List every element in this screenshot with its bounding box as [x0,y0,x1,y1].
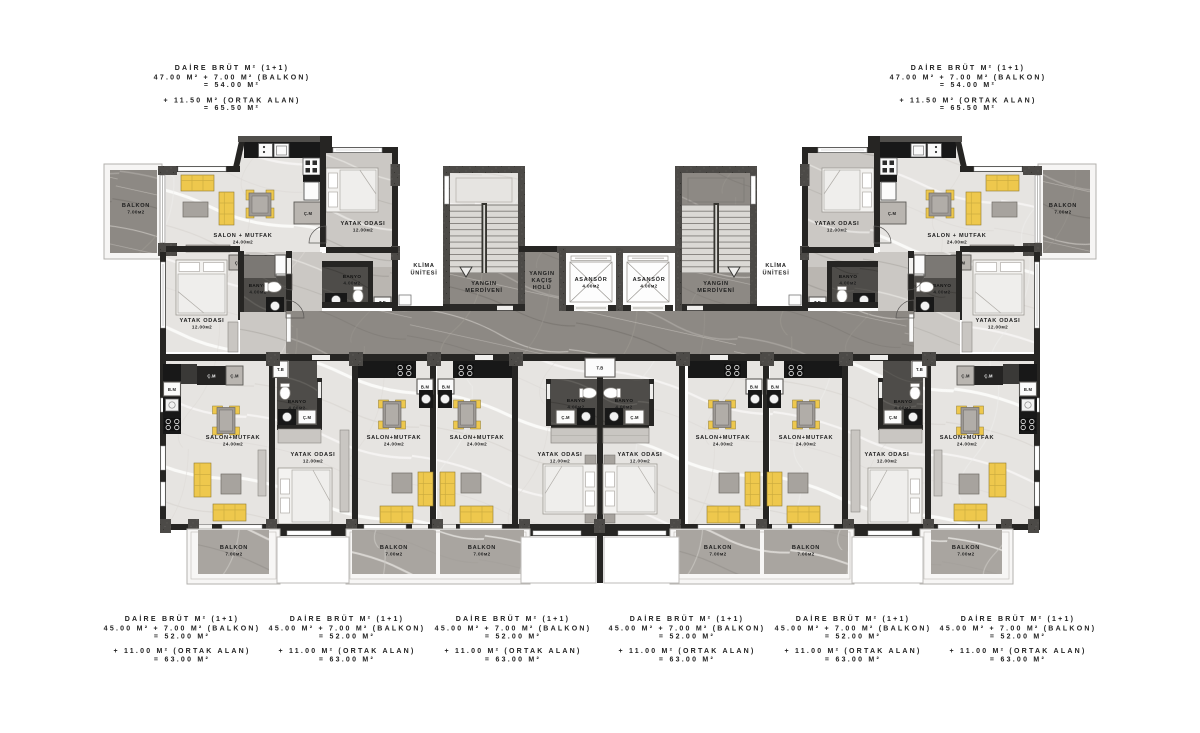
svg-text:YATAK ODASI: YATAK ODASI [291,452,336,458]
svg-text:DAİRE BRÜT M² (1+1): DAİRE BRÜT M² (1+1) [961,614,1076,623]
svg-text:SALON+MUTFAK: SALON+MUTFAK [450,435,505,441]
svg-text:Ç.M: Ç.M [207,373,216,378]
svg-text:YATAK ODASI: YATAK ODASI [815,221,860,227]
svg-text:Ç.M: Ç.M [630,415,639,420]
svg-text:B.M: B.M [750,384,759,389]
svg-text:BALKON: BALKON [952,545,980,551]
svg-text:BANYO: BANYO [933,283,952,288]
svg-text:7.00м2: 7.00м2 [957,552,974,557]
svg-text:+ 11.00 M² (ORTAK ALAN): + 11.00 M² (ORTAK ALAN) [113,648,250,655]
svg-text:DAİRE BRÜT M² (1+1): DAİRE BRÜT M² (1+1) [125,614,240,623]
svg-text:ASANSÖR: ASANSÖR [575,276,608,283]
svg-text:45.00 M² + 7.00 M² (BALKON): 45.00 M² + 7.00 M² (BALKON) [435,626,592,633]
svg-text:45.00 M² + 7.00 M² (BALKON): 45.00 M² + 7.00 M² (BALKON) [609,626,766,633]
svg-text:12.00м2: 12.00м2 [192,325,212,330]
svg-text:47.00 M² + 7.00 M² (BALKON): 47.00 M² + 7.00 M² (BALKON) [154,75,311,82]
svg-text:7.00м2: 7.00м2 [473,552,490,557]
svg-text:BANYO: BANYO [567,398,586,403]
svg-text:BALKON: BALKON [468,545,496,551]
svg-text:+ 11.50 M² (ORTAK ALAN): + 11.50 M² (ORTAK ALAN) [899,98,1036,105]
svg-text:= 52.00 M²: = 52.00 M² [319,634,375,641]
svg-text:12.00м2: 12.00м2 [353,228,373,233]
svg-text:YATAK ODASI: YATAK ODASI [538,452,583,458]
svg-text:24.00м2: 24.00м2 [384,442,404,447]
svg-text:BANYO: BANYO [615,398,634,403]
svg-text:DAİRE BRÜT M² (1+1): DAİRE BRÜT M² (1+1) [630,614,745,623]
svg-text:KLİMA: KLİMA [765,262,786,269]
svg-text:= 65.50 M²: = 65.50 M² [204,105,260,112]
svg-text:BALKON: BALKON [792,545,820,551]
svg-text:= 54.00 M²: = 54.00 M² [204,82,260,89]
svg-text:= 63.00 M²: = 63.00 M² [319,657,375,664]
svg-text:24.00м2: 24.00м2 [947,240,967,245]
svg-text:+ 11.00 M² (ORTAK ALAN): + 11.00 M² (ORTAK ALAN) [444,648,581,655]
svg-text:B.M: B.M [442,384,451,389]
svg-text:BALKON: BALKON [380,545,408,551]
svg-text:YANGIN: YANGIN [703,281,728,287]
svg-text:24.00м2: 24.00м2 [957,442,977,447]
svg-text:= 63.00 M²: = 63.00 M² [659,657,715,664]
svg-text:= 63.00 M²: = 63.00 M² [154,657,210,664]
svg-text:T.B: T.B [597,365,604,370]
svg-text:ÜNİTESİ: ÜNİTESİ [763,270,790,277]
svg-text:B.M: B.M [421,384,430,389]
svg-text:= 52.00 M²: = 52.00 M² [485,634,541,641]
svg-text:+ 11.50 M² (ORTAK ALAN): + 11.50 M² (ORTAK ALAN) [163,98,300,105]
svg-text:BALKON: BALKON [1049,203,1077,209]
svg-text:7.00м2: 7.00м2 [709,552,726,557]
svg-text:YANGIN: YANGIN [471,281,496,287]
svg-text:12.00м2: 12.00м2 [827,228,847,233]
svg-text:45.00 M² + 7.00 M² (BALKON): 45.00 M² + 7.00 M² (BALKON) [269,626,426,633]
svg-text:BALKON: BALKON [220,545,248,551]
svg-text:= 65.50 M²: = 65.50 M² [940,105,996,112]
svg-text:Ç.M: Ç.M [230,373,239,378]
svg-text:YANGIN: YANGIN [529,271,554,277]
svg-text:24.00м2: 24.00м2 [223,442,243,447]
svg-text:T.B: T.B [277,367,284,372]
svg-text:24.00м2: 24.00м2 [467,442,487,447]
svg-text:= 52.00 M²: = 52.00 M² [990,634,1046,641]
svg-text:47.00 M² + 7.00 M² (BALKON): 47.00 M² + 7.00 M² (BALKON) [890,75,1047,82]
svg-text:SALON + MUTFAK: SALON + MUTFAK [927,233,986,239]
svg-text:4.00м2: 4.00м2 [839,281,856,286]
svg-text:DAİRE BRÜT M² (1+1): DAİRE BRÜT M² (1+1) [796,614,911,623]
svg-text:4.00м2: 4.00м2 [343,281,360,286]
svg-text:Ç.M: Ç.M [888,211,897,216]
svg-text:SALON+MUTFAK: SALON+MUTFAK [206,435,261,441]
svg-text:BANYO: BANYO [894,399,913,404]
svg-text:7.00м2: 7.00м2 [127,210,144,215]
svg-text:24.00м2: 24.00м2 [796,442,816,447]
svg-text:12.00м2: 12.00м2 [550,459,570,464]
svg-text:+ 11.00 M² (ORTAK ALAN): + 11.00 M² (ORTAK ALAN) [784,648,921,655]
svg-text:= 52.00 M²: = 52.00 M² [154,634,210,641]
svg-text:4.00м2: 4.00м2 [640,284,657,289]
svg-text:KLİMA: KLİMA [413,262,434,269]
svg-text:4.00м2: 4.00м2 [249,290,266,295]
svg-text:Ç.M: Ç.M [303,415,312,420]
svg-text:12.00м2: 12.00м2 [877,459,897,464]
svg-text:YATAK ODASI: YATAK ODASI [618,452,663,458]
svg-text:BALKON: BALKON [704,545,732,551]
svg-text:SALON + MUTFAK: SALON + MUTFAK [213,233,272,239]
svg-text:4.00м2: 4.00м2 [933,290,950,295]
svg-text:ÜNİTESİ: ÜNİTESİ [411,270,438,277]
svg-text:24.00м2: 24.00м2 [233,240,253,245]
svg-text:= 63.00 M²: = 63.00 M² [990,657,1046,664]
svg-text:+ 11.00 M² (ORTAK ALAN): + 11.00 M² (ORTAK ALAN) [949,648,1086,655]
svg-text:T.B: T.B [916,367,923,372]
svg-text:Ç.M: Ç.M [889,415,898,420]
svg-text:Ç.M: Ç.M [961,373,970,378]
svg-text:B.M: B.M [771,384,780,389]
svg-text:YATAK ODASI: YATAK ODASI [180,318,225,324]
svg-text:Ç.M: Ç.M [304,211,313,216]
svg-text:BANYO: BANYO [343,274,362,279]
svg-text:YATAK ODASI: YATAK ODASI [865,452,910,458]
svg-text:B.M: B.M [1024,387,1033,392]
svg-text:+ 11.00 M² (ORTAK ALAN): + 11.00 M² (ORTAK ALAN) [278,648,415,655]
svg-text:KAÇIŞ: KAÇIŞ [532,278,553,284]
svg-text:BALKON: BALKON [122,203,150,209]
svg-text:DAİRE BRÜT M² (1+1): DAİRE BRÜT M² (1+1) [911,63,1026,72]
svg-text:7.00м2: 7.00м2 [225,552,242,557]
svg-text:HOLÜ: HOLÜ [533,284,552,291]
svg-text:B.M: B.M [168,387,177,392]
svg-text:Ç.M: Ç.M [561,415,570,420]
svg-text:45.00 M² + 7.00 M² (BALKON): 45.00 M² + 7.00 M² (BALKON) [940,626,1097,633]
svg-text:DAİRE BRÜT M² (1+1): DAİRE BRÜT M² (1+1) [290,614,405,623]
svg-text:SALON+MUTFAK: SALON+MUTFAK [779,435,834,441]
svg-text:= 54.00 M²: = 54.00 M² [940,82,996,89]
svg-text:MERDİVENİ: MERDİVENİ [465,287,502,294]
svg-text:SALON+MUTFAK: SALON+MUTFAK [367,435,422,441]
svg-text:7.00м2: 7.00м2 [1054,210,1071,215]
svg-text:45.00 M² + 7.00 M² (BALKON): 45.00 M² + 7.00 M² (BALKON) [104,626,261,633]
svg-text:12.00м2: 12.00м2 [988,325,1008,330]
svg-text:= 52.00 M²: = 52.00 M² [825,634,881,641]
svg-text:YATAK ODASI: YATAK ODASI [976,318,1021,324]
svg-text:DAİRE BRÜT M² (1+1): DAİRE BRÜT M² (1+1) [175,63,290,72]
svg-text:SALON+MUTFAK: SALON+MUTFAK [696,435,751,441]
svg-text:12.00м2: 12.00м2 [630,459,650,464]
svg-text:= 63.00 M²: = 63.00 M² [485,657,541,664]
svg-text:45.00 M² + 7.00 M² (BALKON): 45.00 M² + 7.00 M² (BALKON) [775,626,932,633]
svg-text:24.00м2: 24.00м2 [713,442,733,447]
svg-text:YATAK ODASI: YATAK ODASI [341,221,386,227]
svg-text:SALON+MUTFAK: SALON+MUTFAK [940,435,995,441]
svg-text:MERDİVENİ: MERDİVENİ [697,287,734,294]
svg-text:4.00м2: 4.00м2 [582,284,599,289]
svg-text:DAİRE BRÜT M² (1+1): DAİRE BRÜT M² (1+1) [456,614,571,623]
svg-text:Ç.M: Ç.M [984,373,993,378]
svg-text:BANYO: BANYO [839,274,858,279]
svg-text:12.00м2: 12.00м2 [303,459,323,464]
svg-text:= 52.00 M²: = 52.00 M² [659,634,715,641]
svg-text:ASANSÖR: ASANSÖR [633,276,666,283]
svg-text:= 63.00 M²: = 63.00 M² [825,657,881,664]
svg-text:BANYO: BANYO [288,399,307,404]
svg-text:7.00м2: 7.00м2 [797,552,814,557]
svg-text:7.00м2: 7.00м2 [385,552,402,557]
svg-text:+ 11.00 M² (ORTAK ALAN): + 11.00 M² (ORTAK ALAN) [618,648,755,655]
